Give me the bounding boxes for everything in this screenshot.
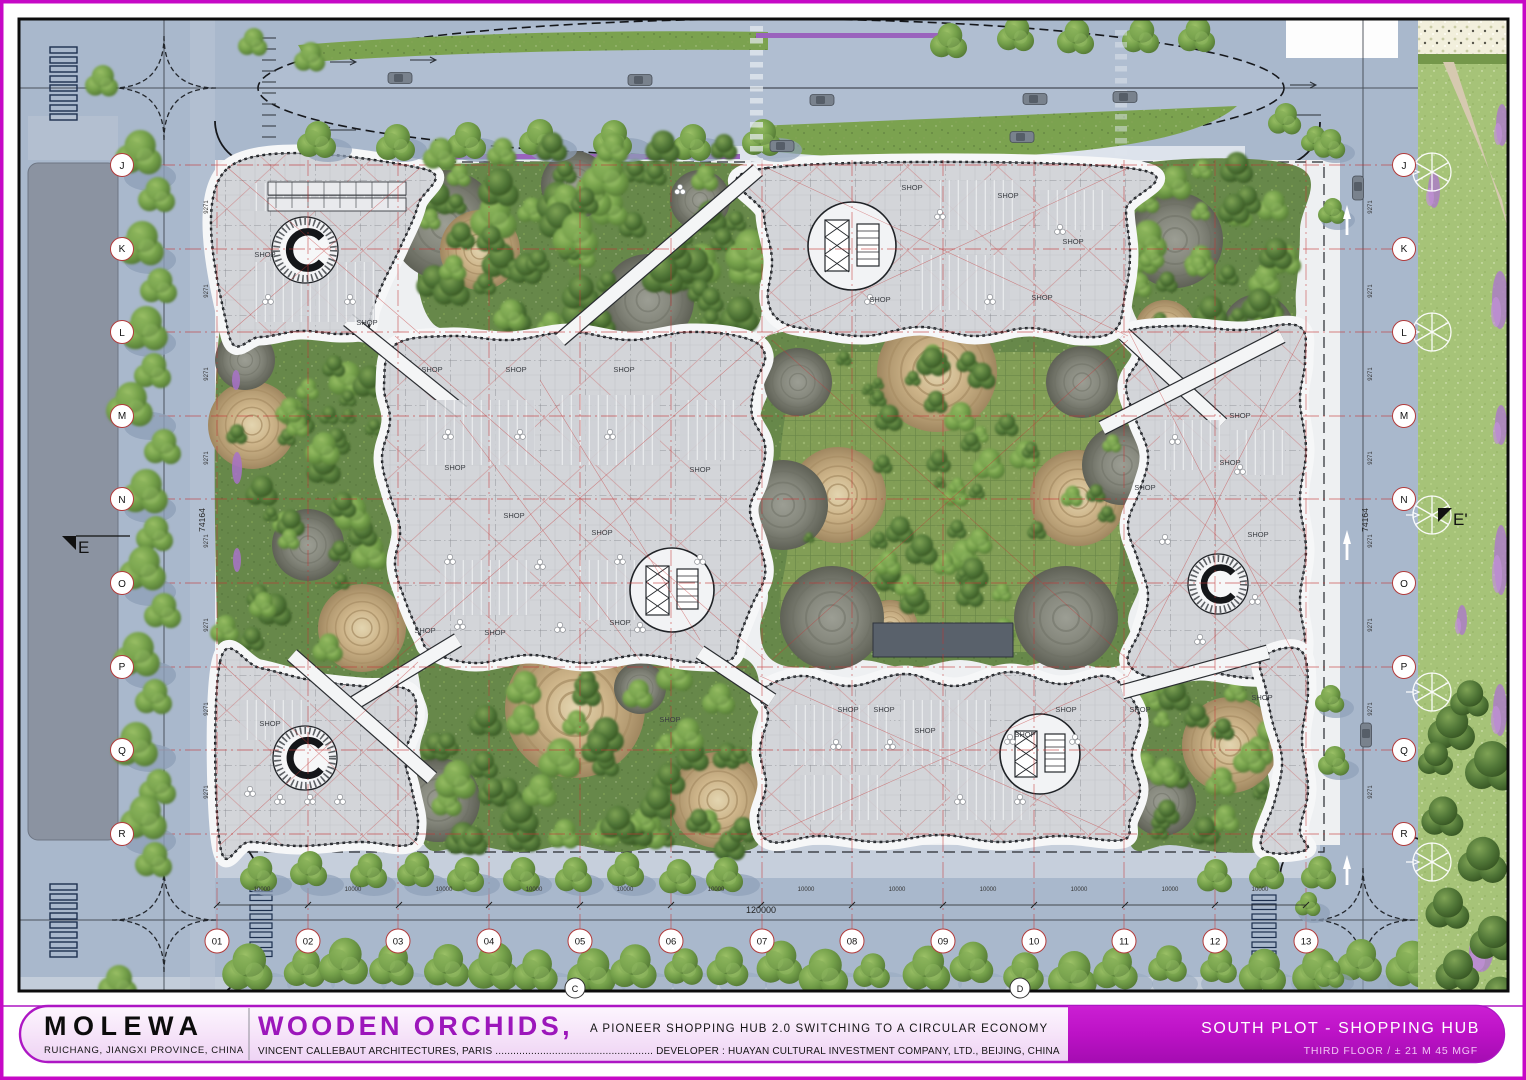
svg-text:RUICHANG, JIANGXI PROVINCE, CH: RUICHANG, JIANGXI PROVINCE, CHINA — [44, 1045, 244, 1056]
svg-text:9271: 9271 — [1368, 702, 1374, 716]
svg-text:02: 02 — [303, 937, 314, 948]
svg-text:SHOP: SHOP — [356, 318, 377, 327]
svg-text:SHOP: SHOP — [414, 626, 435, 635]
svg-text:04: 04 — [484, 937, 495, 948]
svg-text:SHOP: SHOP — [591, 528, 612, 537]
svg-text:10000: 10000 — [436, 887, 453, 893]
svg-text:9271: 9271 — [204, 367, 210, 381]
svg-text:9271: 9271 — [1368, 200, 1374, 214]
svg-text:J: J — [1402, 161, 1407, 172]
svg-text:SHOP: SHOP — [421, 365, 442, 374]
svg-text:12: 12 — [1210, 937, 1221, 948]
svg-text:SHOP: SHOP — [1055, 705, 1076, 714]
svg-text:SHOP: SHOP — [1062, 237, 1083, 246]
svg-text:SHOP: SHOP — [873, 705, 894, 714]
svg-text:SHOP: SHOP — [484, 628, 505, 637]
svg-text:SHOP: SHOP — [503, 511, 524, 520]
svg-text:SHOP: SHOP — [1129, 705, 1150, 714]
svg-text:10000: 10000 — [708, 887, 725, 893]
svg-text:10000: 10000 — [889, 887, 906, 893]
svg-text:SHOP: SHOP — [613, 365, 634, 374]
svg-text:05: 05 — [575, 937, 586, 948]
svg-text:R: R — [1400, 829, 1407, 840]
svg-text:N: N — [1400, 495, 1407, 506]
svg-text:11: 11 — [1119, 937, 1129, 948]
svg-text:E: E — [78, 538, 89, 557]
svg-text:SHOP: SHOP — [914, 726, 935, 735]
svg-text:10: 10 — [1029, 937, 1040, 948]
svg-text:10000: 10000 — [1162, 887, 1179, 893]
svg-text:SHOP: SHOP — [1229, 411, 1250, 420]
svg-text:SHOP: SHOP — [997, 191, 1018, 200]
svg-text:120000: 120000 — [746, 905, 776, 915]
svg-text:Q: Q — [1400, 746, 1408, 757]
svg-text:SHOP: SHOP — [1014, 730, 1035, 739]
svg-text:9271: 9271 — [1368, 785, 1374, 799]
svg-text:SHOP: SHOP — [505, 365, 526, 374]
svg-text:WOODEN ORCHIDS,: WOODEN ORCHIDS, — [258, 1011, 573, 1041]
svg-text:A PIONEER SHOPPING HUB 2.0 SWI: A PIONEER SHOPPING HUB 2.0 SWITCHING TO … — [590, 1023, 1048, 1035]
svg-text:D: D — [1017, 984, 1024, 994]
svg-text:9271: 9271 — [204, 618, 210, 632]
svg-text:SHOP: SHOP — [659, 715, 680, 724]
svg-text:74164: 74164 — [1360, 508, 1370, 532]
svg-text:O: O — [1400, 579, 1408, 590]
svg-text:09: 09 — [938, 937, 949, 948]
svg-text:SHOP: SHOP — [609, 618, 630, 627]
svg-text:SHOP: SHOP — [837, 705, 858, 714]
svg-text:O: O — [118, 579, 126, 590]
svg-text:10000: 10000 — [254, 887, 271, 893]
svg-text:9271: 9271 — [204, 785, 210, 799]
svg-text:9271: 9271 — [1368, 451, 1374, 465]
svg-text:SOUTH PLOT - SHOPPING HUB: SOUTH PLOT - SHOPPING HUB — [1201, 1020, 1480, 1037]
svg-text:MOLEWA: MOLEWA — [44, 1011, 205, 1041]
svg-text:R: R — [118, 829, 125, 840]
svg-text:E': E' — [1453, 510, 1468, 529]
svg-text:THIRD FLOOR / ± 21 M 45 MGF: THIRD FLOOR / ± 21 M 45 MGF — [1304, 1045, 1478, 1057]
svg-text:07: 07 — [757, 937, 768, 948]
svg-text:N: N — [118, 495, 125, 506]
svg-text:06: 06 — [666, 937, 677, 948]
svg-text:10000: 10000 — [980, 887, 997, 893]
svg-text:9271: 9271 — [1368, 534, 1374, 548]
svg-text:08: 08 — [847, 937, 858, 948]
svg-text:74164: 74164 — [197, 508, 207, 532]
svg-text:10000: 10000 — [1071, 887, 1088, 893]
svg-text:K: K — [119, 244, 126, 255]
svg-text:9271: 9271 — [1368, 284, 1374, 298]
svg-text:VINCENT CALLEBAUT ARCHITECTURE: VINCENT CALLEBAUT ARCHITECTURES, PARIS .… — [258, 1046, 1060, 1057]
svg-text:C: C — [572, 984, 579, 994]
svg-text:SHOP: SHOP — [1251, 693, 1272, 702]
svg-text:M: M — [118, 411, 126, 422]
svg-text:SHOP: SHOP — [689, 465, 710, 474]
svg-text:03: 03 — [393, 937, 404, 948]
svg-text:01: 01 — [212, 937, 223, 948]
svg-text:SHOP: SHOP — [901, 183, 922, 192]
svg-text:SHOP: SHOP — [1247, 530, 1268, 539]
svg-text:SHOP: SHOP — [444, 463, 465, 472]
svg-text:SHOP: SHOP — [254, 250, 275, 259]
svg-text:SHOP: SHOP — [1219, 458, 1240, 467]
svg-text:10000: 10000 — [617, 887, 634, 893]
svg-text:P: P — [119, 662, 126, 673]
svg-text:10000: 10000 — [345, 887, 362, 893]
svg-text:SHOP: SHOP — [1134, 483, 1155, 492]
svg-text:J: J — [120, 161, 125, 172]
svg-text:9271: 9271 — [204, 284, 210, 298]
svg-text:9271: 9271 — [204, 702, 210, 716]
svg-text:L: L — [1401, 328, 1407, 339]
svg-text:SHOP: SHOP — [869, 295, 890, 304]
svg-text:9271: 9271 — [1368, 367, 1374, 381]
svg-text:L: L — [119, 328, 125, 339]
svg-text:SHOP: SHOP — [259, 719, 280, 728]
svg-text:9271: 9271 — [204, 451, 210, 465]
svg-text:13: 13 — [1301, 937, 1312, 948]
svg-text:P: P — [1401, 662, 1408, 673]
svg-text:10000: 10000 — [526, 887, 543, 893]
svg-text:9271: 9271 — [1368, 618, 1374, 632]
svg-text:K: K — [1401, 244, 1408, 255]
svg-text:9271: 9271 — [204, 200, 210, 214]
svg-text:M: M — [1400, 411, 1408, 422]
svg-text:SHOP: SHOP — [1031, 293, 1052, 302]
svg-text:10000: 10000 — [798, 887, 815, 893]
svg-text:Q: Q — [118, 746, 126, 757]
svg-text:9271: 9271 — [204, 534, 210, 548]
svg-text:10000: 10000 — [1252, 887, 1269, 893]
